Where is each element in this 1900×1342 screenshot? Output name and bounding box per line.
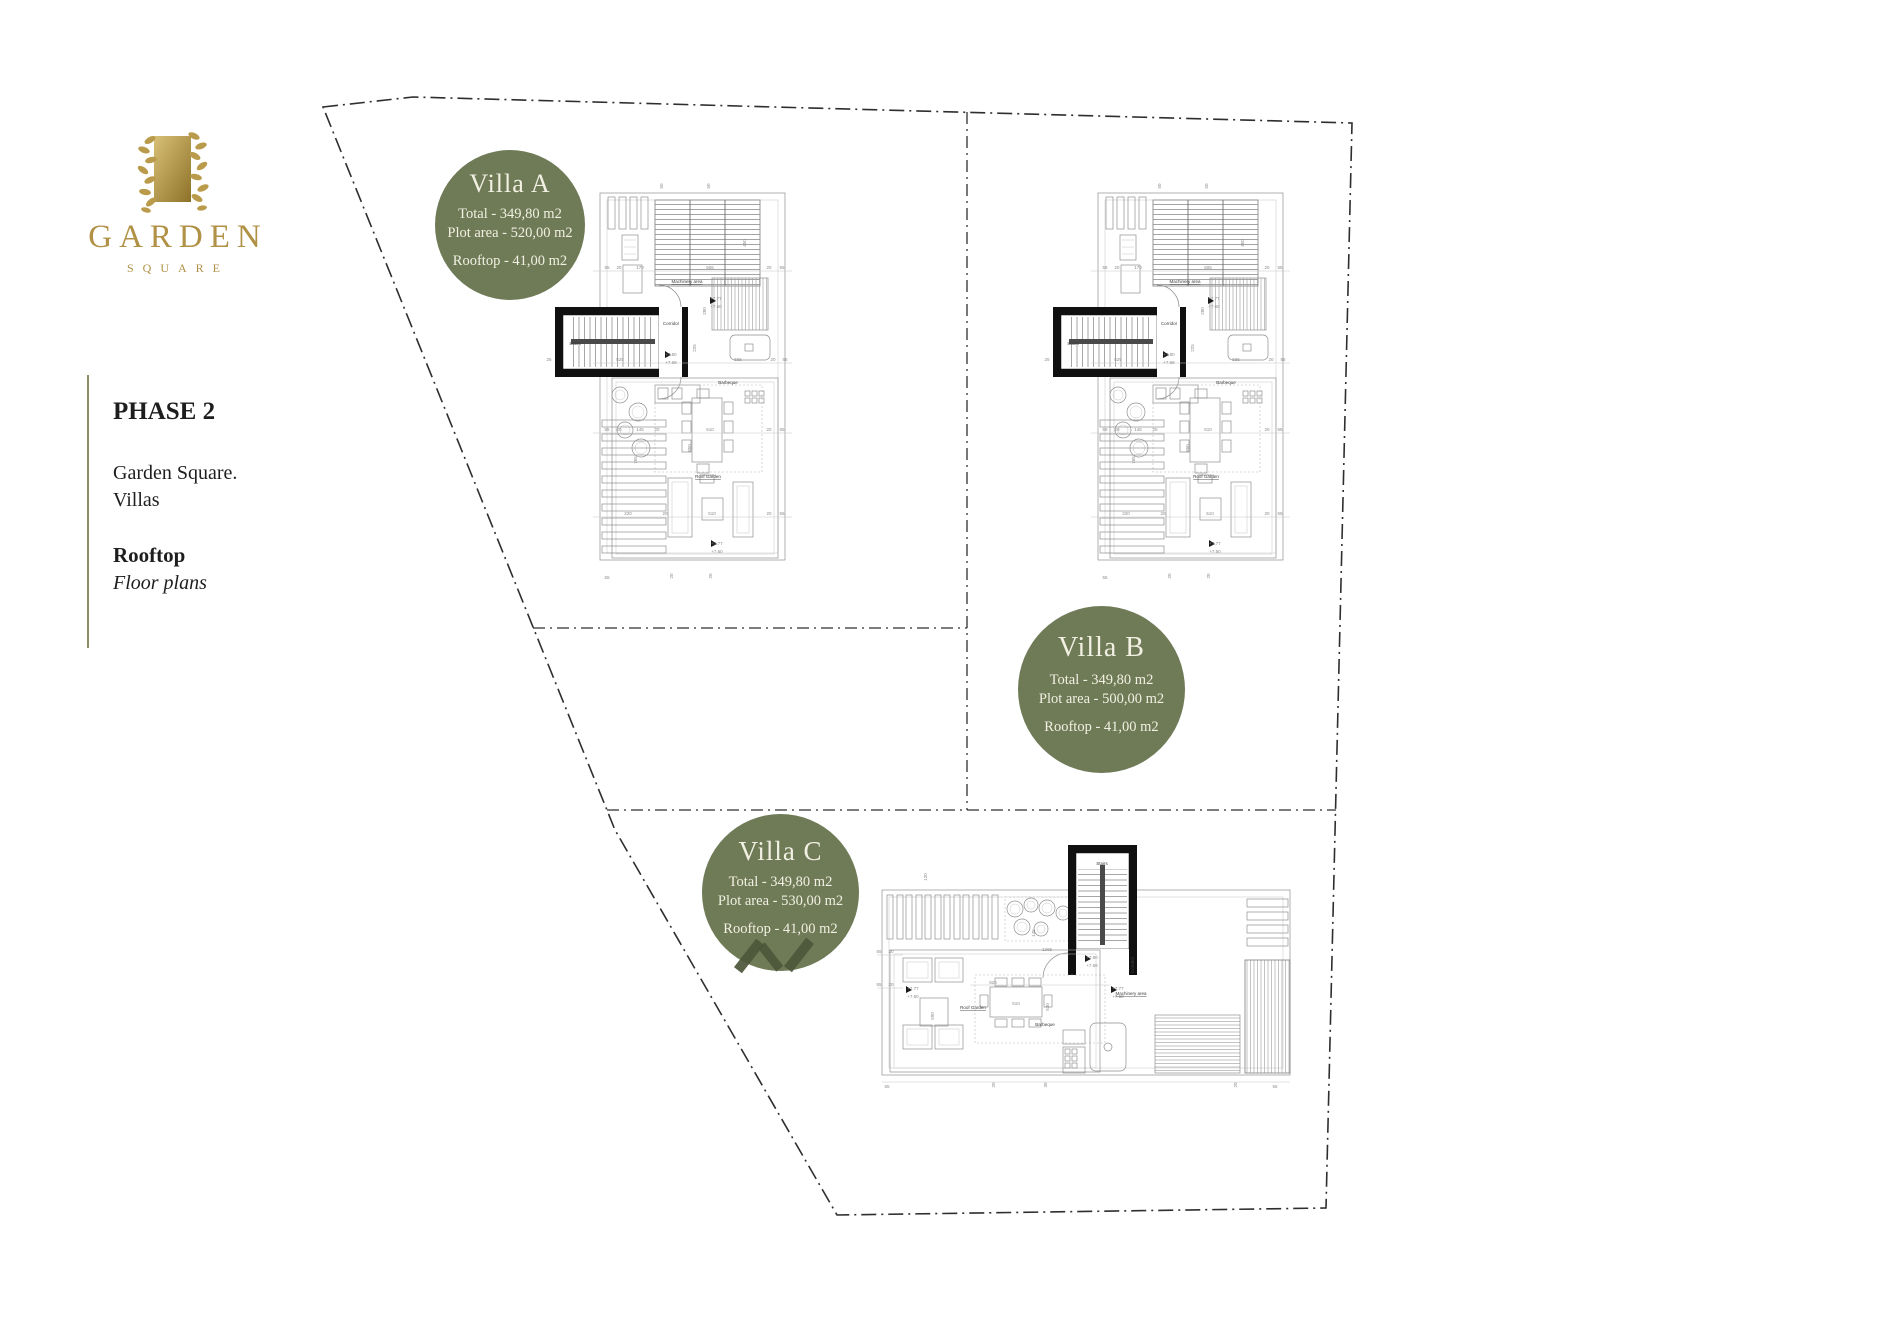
svg-text:20: 20 bbox=[1152, 427, 1158, 432]
svg-text:+7.60: +7.60 bbox=[907, 994, 919, 999]
svg-text:20: 20 bbox=[1268, 357, 1274, 362]
svg-text:55: 55 bbox=[1280, 357, 1286, 362]
svg-text:20: 20 bbox=[766, 265, 772, 270]
svg-text:280: 280 bbox=[1200, 307, 1205, 315]
svg-text:Machinery area: Machinery area bbox=[671, 279, 703, 284]
svg-text:50: 50 bbox=[1204, 183, 1209, 189]
svg-text:Corridor: Corridor bbox=[1130, 956, 1135, 973]
svg-text:120: 120 bbox=[923, 873, 928, 881]
svg-text:20: 20 bbox=[1114, 265, 1120, 270]
svg-text:55: 55 bbox=[1102, 265, 1108, 270]
svg-text:55: 55 bbox=[782, 357, 788, 362]
svg-text:+7.68: +7.68 bbox=[665, 360, 677, 365]
svg-text:55: 55 bbox=[876, 982, 882, 987]
svg-text:450: 450 bbox=[742, 239, 747, 247]
floor-plan-graphics bbox=[555, 193, 792, 560]
svg-text:+7.77: +7.77 bbox=[711, 541, 723, 546]
svg-text:Barbeque: Barbeque bbox=[1216, 380, 1236, 385]
svg-text:+7.60: +7.60 bbox=[1208, 304, 1220, 309]
villa-total: Total - 349,80 m2 bbox=[435, 205, 585, 224]
svg-text:510: 510 bbox=[1204, 427, 1212, 432]
svg-text:20: 20 bbox=[1264, 427, 1270, 432]
svg-text:50: 50 bbox=[659, 183, 664, 189]
svg-text:225: 225 bbox=[1190, 344, 1195, 352]
svg-text:850: 850 bbox=[687, 444, 692, 452]
svg-text:+7.77: +7.77 bbox=[710, 296, 722, 301]
svg-text:565: 565 bbox=[1232, 357, 1240, 362]
svg-text:20: 20 bbox=[1264, 265, 1270, 270]
floor-plan-graphics bbox=[877, 845, 1290, 1082]
svg-text:20: 20 bbox=[662, 511, 668, 516]
svg-text:Stairs: Stairs bbox=[1067, 341, 1079, 346]
svg-text:25: 25 bbox=[546, 357, 552, 362]
svg-text:525: 525 bbox=[1114, 357, 1122, 362]
svg-text:+7.80: +7.80 bbox=[665, 352, 677, 357]
svg-text:20: 20 bbox=[1114, 427, 1120, 432]
svg-text:170: 170 bbox=[636, 265, 644, 270]
villa-total: Total - 349,80 m2 bbox=[1018, 671, 1185, 690]
svg-text:55: 55 bbox=[1277, 511, 1283, 516]
svg-text:20: 20 bbox=[991, 1082, 996, 1088]
villa-c-badge: Villa C Total - 349,80 m2 Plot area - 53… bbox=[702, 814, 859, 971]
svg-text:+7.60: +7.60 bbox=[711, 549, 723, 554]
svg-text:20: 20 bbox=[766, 427, 772, 432]
svg-text:55: 55 bbox=[1277, 265, 1283, 270]
svg-text:Roof Garden: Roof Garden bbox=[1193, 474, 1219, 479]
svg-text:55: 55 bbox=[604, 265, 610, 270]
svg-text:Roof Garden: Roof Garden bbox=[960, 1005, 986, 1010]
svg-text:+7.80: +7.80 bbox=[1163, 352, 1175, 357]
svg-text:506: 506 bbox=[1204, 265, 1212, 270]
svg-text:20: 20 bbox=[888, 949, 894, 954]
svg-text:20: 20 bbox=[766, 511, 772, 516]
svg-text:+7.77: +7.77 bbox=[1208, 296, 1220, 301]
svg-text:55: 55 bbox=[1102, 427, 1108, 432]
svg-text:20: 20 bbox=[770, 357, 776, 362]
svg-text:20: 20 bbox=[616, 427, 622, 432]
svg-text:Barbeque: Barbeque bbox=[1035, 1022, 1055, 1027]
svg-text:145: 145 bbox=[1134, 427, 1142, 432]
villa-title: Villa B bbox=[1018, 632, 1185, 664]
svg-text:20: 20 bbox=[616, 265, 622, 270]
svg-text:20: 20 bbox=[1264, 511, 1270, 516]
svg-text:55: 55 bbox=[1102, 575, 1108, 580]
svg-text:55: 55 bbox=[884, 1084, 890, 1089]
svg-text:Machinery area: Machinery area bbox=[1169, 279, 1201, 284]
svg-text:590: 590 bbox=[930, 1012, 935, 1020]
svg-text:55: 55 bbox=[604, 427, 610, 432]
svg-text:20: 20 bbox=[654, 427, 660, 432]
svg-text:+7.68: +7.68 bbox=[1086, 963, 1098, 968]
svg-text:20: 20 bbox=[669, 573, 674, 579]
svg-text:55: 55 bbox=[779, 511, 785, 516]
svg-text:850: 850 bbox=[1185, 444, 1190, 452]
svg-text:Corridor: Corridor bbox=[1161, 321, 1178, 326]
svg-text:145: 145 bbox=[1031, 929, 1036, 937]
svg-text:Corridor: Corridor bbox=[663, 321, 680, 326]
svg-text:+7.77: +7.77 bbox=[907, 986, 919, 991]
svg-text:+7.68: +7.68 bbox=[1163, 360, 1175, 365]
svg-text:510: 510 bbox=[708, 511, 716, 516]
svg-text:55: 55 bbox=[604, 575, 610, 580]
villa-title: Villa C bbox=[702, 836, 859, 867]
svg-text:20: 20 bbox=[1167, 573, 1172, 579]
svg-text:765: 765 bbox=[1131, 456, 1136, 464]
svg-text:50: 50 bbox=[706, 183, 711, 189]
svg-text:55: 55 bbox=[779, 427, 785, 432]
svg-text:530: 530 bbox=[1045, 1003, 1050, 1011]
svg-text:30: 30 bbox=[1043, 1082, 1048, 1088]
villa-b-floor-plan: 505055201705062055450Machinery area280+7… bbox=[1043, 148, 1328, 585]
svg-text:220: 220 bbox=[624, 511, 632, 516]
svg-text:20: 20 bbox=[1160, 511, 1166, 516]
svg-text:+7.80: +7.80 bbox=[1086, 955, 1098, 960]
logo-mark bbox=[48, 82, 308, 232]
villa-rooftop-area: Rooftop - 41,00 m2 bbox=[702, 920, 859, 939]
svg-text:1265: 1265 bbox=[1042, 947, 1053, 952]
svg-text:55: 55 bbox=[1272, 1084, 1278, 1089]
svg-text:+7.77: +7.77 bbox=[1209, 541, 1221, 546]
svg-text:450: 450 bbox=[1240, 239, 1245, 247]
svg-text:765: 765 bbox=[633, 456, 638, 464]
svg-text:170: 170 bbox=[1134, 265, 1142, 270]
svg-text:220: 220 bbox=[1122, 511, 1130, 516]
svg-text:20: 20 bbox=[1233, 1082, 1238, 1088]
svg-text:510: 510 bbox=[706, 427, 714, 432]
villa-rooftop-area: Rooftop - 41,00 m2 bbox=[435, 252, 585, 271]
villa-plot-area: Plot area - 500,00 m2 bbox=[1018, 690, 1185, 709]
svg-text:506: 506 bbox=[706, 265, 714, 270]
svg-text:525: 525 bbox=[616, 357, 624, 362]
svg-text:Stairs: Stairs bbox=[1096, 861, 1108, 866]
svg-text:+7.60: +7.60 bbox=[710, 304, 722, 309]
villa-a-badge: Villa A Total - 349,80 m2 Plot area - 52… bbox=[435, 150, 585, 300]
svg-text:Barbeque: Barbeque bbox=[718, 380, 738, 385]
svg-text:145: 145 bbox=[636, 427, 644, 432]
svg-text:55: 55 bbox=[876, 949, 882, 954]
svg-text:20: 20 bbox=[1206, 573, 1211, 579]
villa-b-badge: Villa B Total - 349,80 m2 Plot area - 50… bbox=[1018, 606, 1185, 773]
svg-text:55: 55 bbox=[1277, 427, 1283, 432]
villa-title: Villa A bbox=[435, 169, 585, 199]
svg-text:820: 820 bbox=[989, 980, 997, 985]
floor-plan-sheet: GARDEN SQUARE PHASE 2 Garden Square. Vil… bbox=[0, 0, 1900, 1342]
svg-text:20: 20 bbox=[708, 573, 713, 579]
villa-plot-area: Plot area - 520,00 m2 bbox=[435, 224, 585, 243]
villa-c-floor-plan: 120Stairs+7.80+7.68Corridor5520552014512… bbox=[875, 835, 1300, 1110]
svg-text:280: 280 bbox=[702, 307, 707, 315]
villa-a-floor-plan: 505055201705062055450Machinery area280+7… bbox=[545, 148, 830, 585]
villa-total: Total - 349,80 m2 bbox=[702, 873, 859, 892]
svg-text:Machinery area: Machinery area bbox=[1115, 991, 1147, 996]
svg-text:Roof Garden: Roof Garden bbox=[695, 474, 721, 479]
svg-text:565: 565 bbox=[734, 357, 742, 362]
svg-text:225: 225 bbox=[692, 344, 697, 352]
svg-text:+7.60: +7.60 bbox=[1209, 549, 1221, 554]
floor-plan-graphics bbox=[1053, 193, 1290, 560]
svg-text:25: 25 bbox=[1044, 357, 1050, 362]
svg-text:Stairs: Stairs bbox=[569, 341, 581, 346]
villa-rooftop-area: Rooftop - 41,00 m2 bbox=[1018, 718, 1185, 737]
villa-plot-area: Plot area - 530,00 m2 bbox=[702, 892, 859, 911]
svg-text:510: 510 bbox=[1012, 1001, 1020, 1006]
svg-text:55: 55 bbox=[779, 265, 785, 270]
svg-text:50: 50 bbox=[1157, 183, 1162, 189]
svg-text:510: 510 bbox=[1206, 511, 1214, 516]
svg-text:20: 20 bbox=[888, 982, 894, 987]
